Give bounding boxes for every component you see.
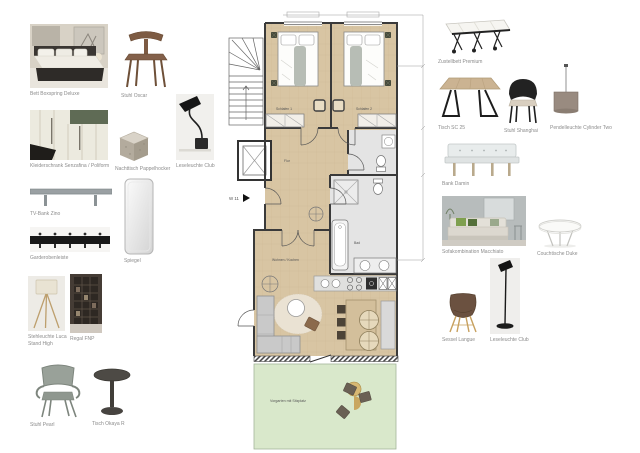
product-label: Pendelleuchte Cylinder Two	[550, 125, 612, 132]
bench-icon	[442, 142, 522, 178]
wood-chair-icon	[121, 30, 171, 90]
terrace: Vorgarten mit Sitzplatz	[254, 364, 396, 449]
terrace-label: Vorgarten mit Sitzplatz	[270, 399, 306, 403]
product-label: Nachttisch Pappelhocker	[115, 166, 170, 173]
tile-couchtisch-duke: Couchtische Duke	[537, 218, 583, 258]
bedroom1-label: Schlafen 1	[276, 107, 292, 111]
tile-spiegel: Spiegel	[124, 178, 154, 265]
floor-plan: Vorgarten mit Sitzplatz	[226, 8, 432, 453]
wardrobe-photo-icon	[30, 110, 108, 160]
terrace-wall	[254, 355, 398, 362]
product-label: Couchtische Duke	[537, 251, 583, 258]
sofa-photo-icon	[442, 196, 526, 246]
tile-stuhl-shanghai: Stuhl Shanghai	[504, 76, 542, 135]
tile-sofa-macchiato: Sofakombination Macchiato	[442, 196, 526, 256]
product-label: Garderobenleiste	[30, 255, 110, 262]
tile-garderobenleiste: Garderobenleiste	[30, 227, 110, 262]
entrance-marker: W 11	[229, 194, 250, 202]
product-label: Bank Damin	[442, 181, 522, 188]
shelf-photo-icon	[70, 274, 102, 333]
mirror-icon	[124, 178, 154, 255]
tile-leseleuchte-club: Leseleuchte Club	[176, 94, 215, 170]
product-label: Bett Boxspring Deluxe	[30, 91, 108, 98]
pendant-lamp-icon	[550, 64, 582, 122]
tv-bench-icon	[30, 184, 112, 208]
tile-stuhl-pearl: Stuhl Pearl	[30, 362, 86, 429]
shell-chair-icon	[442, 292, 484, 334]
product-label: Leseleuchte Club	[176, 163, 215, 170]
product-label: Tisch Okaya R	[92, 421, 132, 428]
tile-bank-damin: Bank Damin	[442, 142, 522, 188]
hall-label: Flur	[284, 159, 291, 163]
rounded-chair-icon	[504, 76, 542, 125]
product-label: Stehleuchte Luca Stand High	[28, 334, 76, 348]
product-label: Tisch SC 25	[438, 125, 502, 132]
coffee-table-icon	[537, 218, 583, 248]
product-label: Stuhl Pearl	[30, 422, 86, 429]
pedestal-table-icon	[92, 366, 132, 418]
tile-stehleuchte-luca: Stehleuchte Luca Stand High	[28, 276, 76, 348]
tile-regal-fnp: Regal FNP	[70, 274, 102, 343]
dimension-lines	[397, 64, 425, 262]
tile-sessel-langue: Sessel Langue	[442, 292, 484, 344]
entrance-arrow-icon	[243, 194, 250, 202]
tile-pendelleuchte: Pendelleuchte Cylinder Two	[550, 64, 612, 132]
product-label: TV-Bank Zino	[30, 211, 112, 218]
living-label: Wohnen / Kochen	[272, 258, 299, 262]
product-label: Stuhl Shanghai	[504, 128, 542, 135]
bed-photo-icon	[30, 24, 108, 88]
wicker-chair-icon	[30, 362, 86, 419]
product-label: Sofakombination Macchiato	[442, 249, 526, 256]
table-lamp-icon	[176, 94, 214, 160]
bedroom2-label: Schlafen 2	[356, 107, 372, 111]
floor-reading-lamp-icon	[490, 258, 520, 334]
entrance-label: W 11	[229, 196, 239, 201]
product-label: Kleiderschrank Senzafina / Poliform	[30, 163, 109, 170]
page: Bett Boxspring Deluxe Stuhl Oscar Kleide…	[0, 0, 640, 453]
tile-tisch-sc25: Tisch SC 25	[438, 72, 502, 132]
tile-tv-bank: TV-Bank Zino	[30, 184, 112, 218]
product-label: Leseleuchte Club	[490, 337, 529, 344]
tile-leseleuchte-club-floor: Leseleuchte Club	[490, 258, 529, 344]
bath-label: Bad	[354, 241, 360, 245]
kitchen	[314, 276, 396, 291]
product-label: Regal FNP	[70, 336, 102, 343]
product-label: Stuhl Oscar	[121, 93, 171, 100]
product-label: Zustellbett Premium	[438, 59, 514, 66]
tile-bett-boxspring: Bett Boxspring Deluxe	[30, 24, 108, 98]
staircase	[229, 38, 263, 125]
dining-table-icon	[438, 72, 502, 122]
coat-rail-icon	[30, 227, 110, 252]
cube-stool-icon	[115, 130, 152, 163]
elevator	[238, 141, 271, 180]
product-label: Spiegel	[124, 258, 154, 265]
tile-kleiderschrank: Kleiderschrank Senzafina / Poliform	[30, 110, 109, 170]
product-label: Sessel Langue	[442, 337, 484, 344]
tile-zustellbett: Zustellbett Premium	[438, 16, 514, 66]
folding-bed-icon	[438, 16, 514, 56]
tripod-floor-lamp-icon	[28, 276, 65, 331]
tile-tisch-okaya: Tisch Okaya R	[92, 366, 132, 428]
tile-stuhl-oscar: Stuhl Oscar	[121, 30, 171, 100]
tile-nachttisch: Nachttisch Pappelhocker	[115, 130, 170, 173]
